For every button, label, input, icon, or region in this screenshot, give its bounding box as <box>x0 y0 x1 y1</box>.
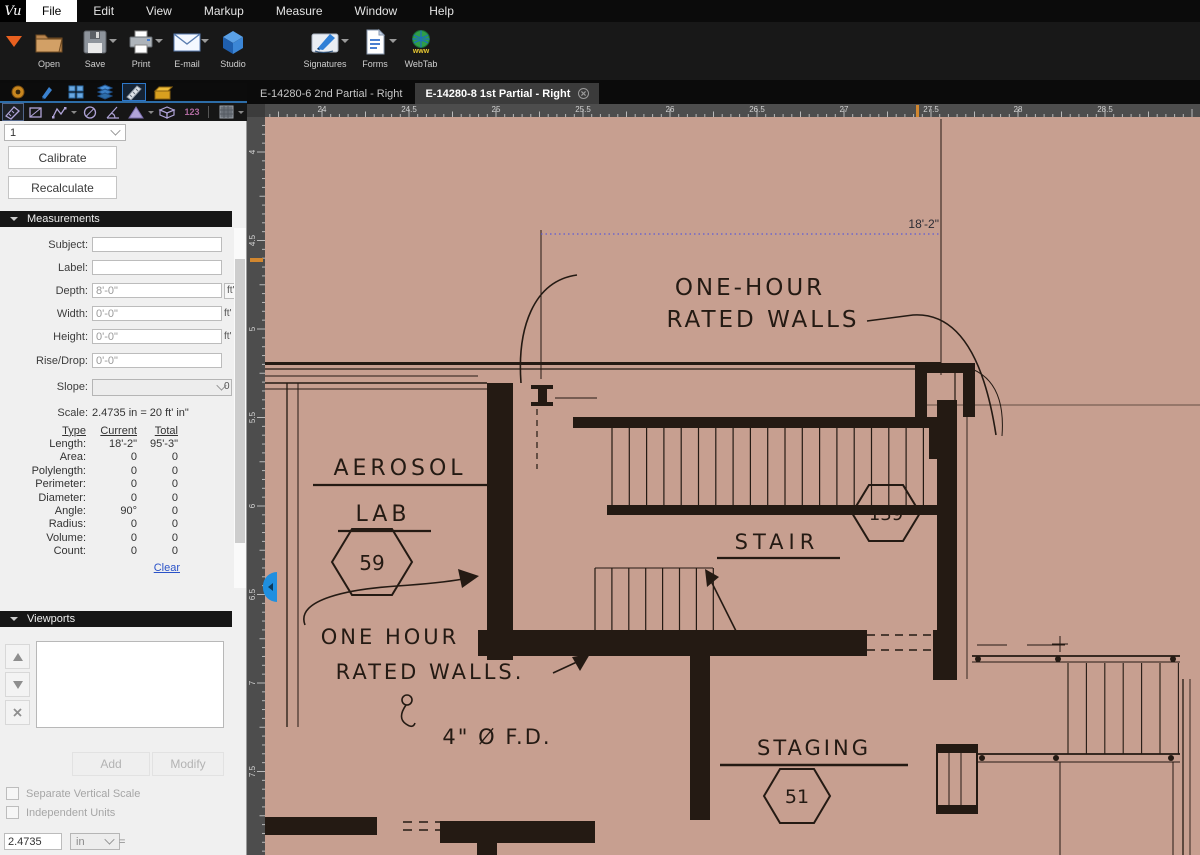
panel-scrollbar[interactable] <box>234 228 246 588</box>
capture-caret[interactable] <box>238 111 244 114</box>
cutout-tool-icon[interactable] <box>157 104 177 120</box>
save-dropdown-caret[interactable] <box>109 39 117 43</box>
rise-drop-field-row: Rise/Drop: <box>0 353 240 369</box>
clear-link[interactable]: Clear <box>139 562 180 574</box>
rise-drop-input[interactable] <box>92 353 222 368</box>
drawing-canvas[interactable]: 18'-2" ONE-HOUR RATED WALLS <box>265 117 1200 855</box>
ruler-corner <box>247 104 265 117</box>
document-area: E-14280-6 2nd Partial - Right E-14280-8 … <box>247 83 1200 855</box>
svg-text:6: 6 <box>248 503 257 508</box>
studio-button[interactable]: Studio <box>210 27 256 69</box>
collapse-arrow-icon <box>10 617 18 621</box>
slope-select[interactable] <box>92 379 232 396</box>
revu-application-window: Vu File Edit View Markup Measure Window … <box>0 0 1200 855</box>
svg-text:24.5: 24.5 <box>401 105 417 114</box>
height-field-row: Height: ft' <box>0 329 240 345</box>
note-one-hour-bottom: ONE HOUR <box>321 625 459 649</box>
menu-file[interactable]: File <box>26 0 77 22</box>
viewport-down-button[interactable] <box>5 672 30 697</box>
webtab-button[interactable]: www WebTab <box>398 27 444 69</box>
note-rated-walls-top: RATED WALLS <box>666 307 859 333</box>
slope-suffix: 0 <box>224 381 230 392</box>
capture-tool-icon[interactable] <box>216 104 236 120</box>
dimension-label: 18'-2" <box>908 217 939 231</box>
layers-icon[interactable] <box>94 84 116 100</box>
scale-value-input[interactable] <box>4 833 62 850</box>
height-unit-label: ft' <box>224 331 231 342</box>
svg-text:28: 28 <box>1014 105 1023 114</box>
panel-tab-strip <box>0 83 247 103</box>
measurement-tools-row: 123 <box>0 103 247 121</box>
height-input[interactable] <box>92 329 222 344</box>
svg-text:59: 59 <box>359 551 384 575</box>
table-row: Polylength:00 <box>0 464 232 477</box>
floor-drain-symbol <box>402 695 416 726</box>
svg-text:27.5: 27.5 <box>923 105 939 114</box>
save-button[interactable]: Save <box>72 27 118 69</box>
table-row: Angle:90°0 <box>0 504 232 517</box>
menu-measure[interactable]: Measure <box>260 0 339 22</box>
svg-text:www: www <box>412 48 430 55</box>
svg-text:24: 24 <box>318 105 327 114</box>
svg-text:51: 51 <box>785 786 809 808</box>
depth-input[interactable] <box>92 283 222 298</box>
exterior-stair-railing <box>949 636 1190 855</box>
svg-text:7: 7 <box>248 680 257 685</box>
email-button[interactable]: E-mail <box>164 27 210 69</box>
menu-markup[interactable]: Markup <box>188 0 260 22</box>
room-staging-label: STAGING <box>757 736 871 760</box>
table-row: Diameter:00 <box>0 491 232 504</box>
forms-dropdown-caret[interactable] <box>389 39 397 43</box>
viewport-modify-button[interactable]: Modify <box>152 752 224 776</box>
measurement-table: Type Current Total Length:18'-2"95'-3" A… <box>0 424 232 558</box>
room-divider-wall <box>690 655 710 820</box>
svg-text:5: 5 <box>248 326 257 331</box>
note-one-hour-top: ONE-HOUR <box>675 275 825 301</box>
studio-icon <box>218 27 248 57</box>
svg-text:26: 26 <box>666 105 675 114</box>
room-stair-label: STAIR <box>735 530 820 554</box>
width-unit-label: ft' <box>224 308 231 319</box>
tool-chest-icon[interactable] <box>152 84 174 100</box>
label-field-row: Label: <box>0 260 240 276</box>
measurements-panel-icon[interactable] <box>123 84 145 100</box>
scale-unit-select[interactable]: in <box>70 833 120 850</box>
svg-text:28.5: 28.5 <box>1097 105 1113 114</box>
print-icon <box>126 27 156 57</box>
open-button[interactable]: Open <box>26 27 72 69</box>
angle-tool-icon[interactable] <box>103 104 123 120</box>
collapse-left-arrow-icon <box>268 583 273 591</box>
collapse-arrow-icon <box>10 217 18 221</box>
slope-field-row: Slope: 0 <box>0 379 240 395</box>
viewport-up-button[interactable] <box>5 644 30 669</box>
count-tool-icon[interactable]: 123 <box>180 104 204 120</box>
app-logo[interactable]: Vu <box>0 0 26 22</box>
document-tab-bar: E-14280-6 2nd Partial - Right E-14280-8 … <box>247 83 1200 104</box>
svg-text:25.5: 25.5 <box>575 105 591 114</box>
forms-document-icon <box>360 27 390 57</box>
svg-text:139: 139 <box>869 504 903 525</box>
drain-note-label: 4" Ø F.D. <box>442 725 551 749</box>
measurements-panel: 1 Calibrate Recalculate Measurements Sub… <box>0 121 247 855</box>
thumbnails-icon[interactable] <box>65 84 87 100</box>
note-rated-walls-bottom: RATED WALLS. <box>336 660 525 684</box>
svg-text:4.5: 4.5 <box>248 234 257 246</box>
viewports-list[interactable] <box>36 641 224 728</box>
newel-post <box>937 745 977 813</box>
volume-tool-icon[interactable] <box>126 104 146 120</box>
railing-posts <box>937 656 1176 813</box>
signatures-pen-icon <box>310 27 340 57</box>
label-input[interactable] <box>92 260 222 275</box>
polylength-caret[interactable] <box>71 111 77 114</box>
scale-value: 2.4735 in = 20 ft' in" <box>92 407 189 419</box>
viewport-delete-button[interactable] <box>5 700 30 725</box>
volume-caret[interactable] <box>148 111 154 114</box>
svg-text:4: 4 <box>248 149 257 154</box>
length-tool-icon[interactable] <box>3 104 23 120</box>
stair-treads-upper <box>612 428 923 505</box>
separate-vertical-scale-checkbox[interactable] <box>6 787 19 800</box>
subject-input[interactable] <box>92 237 222 252</box>
scrollbar-thumb[interactable] <box>235 259 245 543</box>
recalculate-button[interactable]: Recalculate <box>8 176 117 199</box>
menu-view[interactable]: View <box>130 0 188 22</box>
stair-rails <box>573 417 941 515</box>
width-input[interactable] <box>92 306 222 321</box>
area-tool-icon[interactable] <box>26 104 46 120</box>
print-button[interactable]: Print <box>118 27 164 69</box>
bottom-walls <box>265 817 595 855</box>
depth-field-row: Depth: ft' <box>0 283 240 299</box>
save-floppy-icon <box>80 27 110 57</box>
main-toolbar: Open Save Print E-mail <box>0 22 1200 80</box>
calibrate-button[interactable]: Calibrate <box>8 146 117 169</box>
signatures-dropdown-caret[interactable] <box>341 39 349 43</box>
width-field-row: Width: ft' <box>0 306 240 322</box>
svg-text:7.5: 7.5 <box>248 765 257 777</box>
table-row: Count:00 <box>0 545 232 558</box>
table-row: Volume:00 <box>0 531 232 544</box>
webtab-globe-icon: www <box>406 27 436 57</box>
diameter-tool-icon[interactable] <box>80 104 100 120</box>
measurements-section-header[interactable]: Measurements <box>0 211 232 227</box>
toolbar-dropdown-icon[interactable] <box>6 36 22 47</box>
table-row: Radius:00 <box>0 518 232 531</box>
document-tab-1[interactable]: E-14280-6 2nd Partial - Right <box>250 83 412 104</box>
polylength-tool-icon[interactable] <box>49 104 69 120</box>
exterior-stair-balusters <box>1068 663 1178 754</box>
room-number-51: 51 <box>764 769 830 823</box>
document-tab-2[interactable]: E-14280-8 1st Partial - Right <box>415 83 599 104</box>
menu-bar: Vu File Edit View Markup Measure Window … <box>0 0 1200 22</box>
table-row: Area:00 <box>0 451 232 464</box>
horizontal-ruler[interactable]: 2424.52525.52626.52727.52828.5 <box>265 104 1200 117</box>
independent-units-checkbox[interactable] <box>6 806 19 819</box>
table-header-row: Type Current Total <box>0 424 232 437</box>
page-select[interactable]: 1 <box>4 124 126 141</box>
independent-units-row: Independent Units <box>6 806 115 819</box>
room-lab-label: LAB <box>356 502 411 527</box>
email-dropdown-caret[interactable] <box>201 39 209 43</box>
table-row: Perimeter:00 <box>0 478 232 491</box>
svg-text:26.5: 26.5 <box>749 105 765 114</box>
markups-list-icon[interactable] <box>36 84 58 100</box>
table-row: Length:18'-2"95'-3" <box>0 437 232 450</box>
email-envelope-icon <box>172 27 202 57</box>
room-aerosol-label: AEROSOL <box>333 456 466 481</box>
tab-close-icon[interactable] <box>578 88 589 99</box>
separate-vertical-scale-row: Separate Vertical Scale <box>6 787 140 800</box>
svg-text:6.5: 6.5 <box>248 588 257 600</box>
subject-field-row: Subject: <box>0 237 240 253</box>
file-access-icon[interactable] <box>7 84 29 100</box>
length-measurement-markup[interactable]: 18'-2" <box>541 217 941 234</box>
open-folder-icon <box>34 27 64 57</box>
stair-direction-arrow <box>705 569 736 631</box>
viewports-section-header[interactable]: Viewports <box>0 611 232 627</box>
menu-window[interactable]: Window <box>339 0 414 22</box>
viewport-add-button[interactable]: Add <box>72 752 150 776</box>
tools-separator <box>208 106 209 118</box>
scale-row: Scale: 2.4735 in = 20 ft' in" <box>0 405 240 421</box>
svg-text:5.5: 5.5 <box>248 411 257 423</box>
signatures-button[interactable]: Signatures <box>298 27 352 69</box>
menu-edit[interactable]: Edit <box>77 0 130 22</box>
svg-text:27: 27 <box>840 105 849 114</box>
forms-button[interactable]: Forms <box>352 27 398 69</box>
equals-label: = <box>119 836 125 848</box>
stair-treads-lower <box>595 568 713 630</box>
vertical-ruler[interactable]: 44.555.566.577.5 <box>247 117 265 855</box>
menu-help[interactable]: Help <box>413 0 470 22</box>
svg-text:25: 25 <box>492 105 501 114</box>
print-dropdown-caret[interactable] <box>155 39 163 43</box>
